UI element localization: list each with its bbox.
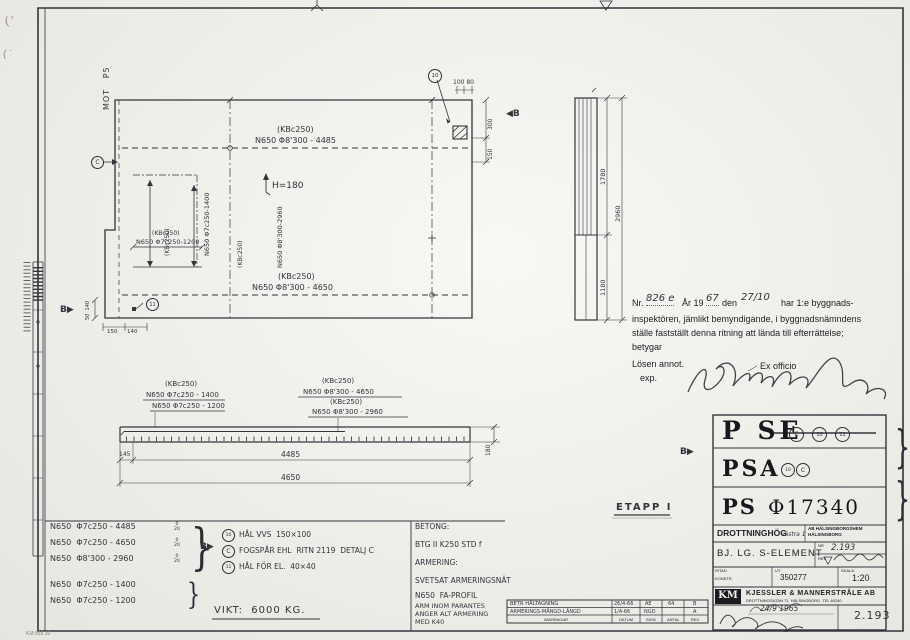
pse-mark-11-label: 11 bbox=[839, 432, 845, 438]
plan-vert1-kbc: (KBc250) bbox=[165, 193, 171, 256]
plan-mot-p5-label: MOT P5 bbox=[103, 66, 111, 110]
plan-bottom-rebar-note-line2: N650 Φ8'300 - 4650 bbox=[252, 284, 333, 292]
plan-dim-150: 150 bbox=[488, 149, 494, 160]
title-block-marker-b: B▶ bbox=[680, 448, 694, 457]
plan-dim-140-bottom: 140 bbox=[127, 330, 138, 336]
sheet-number: 2.193 bbox=[854, 610, 891, 622]
rebar-row-2-tolerance: 0 20 bbox=[174, 538, 180, 549]
tol-bottom: 20 bbox=[174, 543, 180, 548]
km-logo: KM bbox=[715, 589, 741, 604]
pse-mark-10-label: 10 bbox=[816, 432, 822, 438]
section-dim-1180: 1180 bbox=[600, 279, 607, 296]
plan-top-rebar-note-line1: (KBc250) bbox=[277, 126, 314, 134]
plan-callout-c: C bbox=[91, 156, 104, 169]
note-callout-10-number: 10 bbox=[226, 533, 232, 538]
pse-mark-10: 10 bbox=[812, 427, 827, 442]
note-callout-11-number: 11 bbox=[226, 565, 232, 570]
plan-callout-10-number: 10 bbox=[432, 73, 439, 79]
stamp-year-label: År 19 bbox=[682, 299, 704, 308]
stamp-nr-value: 826 e bbox=[646, 294, 674, 306]
note-callout-c-letter: C bbox=[226, 548, 230, 555]
rebar-group-brace-2: } bbox=[187, 577, 200, 612]
note-callout-11: 11 bbox=[222, 561, 235, 574]
revision-header-text: ÄNDRINGAR bbox=[544, 618, 568, 622]
plan-dim-300: 300 bbox=[488, 119, 494, 130]
corner-print-note: KM 858.39 bbox=[26, 632, 50, 637]
elevation-left-note-kbc: (KBc250) bbox=[165, 381, 197, 388]
plan-vert2-spec: N650 Φ8'300-2960 bbox=[277, 206, 284, 268]
scanned-construction-drawing: ( ′ ( ˙ KM 858.39 } } MOT P5 (KBc250) N6… bbox=[0, 0, 910, 640]
revision-row-2-rev: A bbox=[693, 610, 696, 615]
rebar-row-2: N650 Φ7c250 - 4650 bbox=[50, 539, 136, 547]
plan-height-label: H=180 bbox=[272, 182, 304, 191]
stamp-line4: betygar bbox=[632, 343, 662, 352]
element-title: BJ. LG. S-ELEMENT bbox=[717, 549, 823, 559]
psa-mark-c-label: C bbox=[801, 467, 805, 474]
element-code-psa: PSA bbox=[722, 458, 781, 481]
elevation-left-note-spec1: N650 Φ7c250 - 1400 bbox=[146, 392, 219, 399]
note-hal-el: HÅL FÖR EL. 40×40 bbox=[239, 563, 316, 571]
rebar-row-1-tolerance: 0 20 bbox=[174, 522, 180, 533]
fold-marks bbox=[311, 0, 612, 11]
plan-vertical-rebar-label-2: (KBc250) N650 Φ8'300-2960 bbox=[204, 206, 318, 268]
rebar-row-4: N650 Φ7c250 - 1400 bbox=[50, 581, 136, 589]
plan-section-marker-b-right: ◀B bbox=[506, 110, 520, 119]
materials-profil: N650 FA-PROFIL bbox=[415, 592, 477, 600]
materials-paren-line1: ARM INOM PARANTES bbox=[415, 603, 485, 610]
plan-callout-c-letter: C bbox=[95, 159, 99, 166]
revision-row-2-sign: NGD bbox=[644, 610, 655, 615]
elevation-lines bbox=[117, 397, 500, 487]
psa-mark-c: C bbox=[796, 463, 810, 477]
elevation-left-note-spec2: N650 Φ7c250 - 1200 bbox=[152, 403, 225, 410]
materials-armering-label: ARMERING: bbox=[415, 559, 458, 567]
company-address: DROTTNINGGATAN 71 HÄLSINGBORG TEL 60240 bbox=[746, 599, 842, 603]
date-handwritten: 24/9 1965 bbox=[760, 605, 798, 613]
scan-mark-top-left-2: ( ˙ bbox=[3, 50, 13, 61]
elevation-dim-180: 180 bbox=[486, 445, 492, 456]
revision-row-1-rev: B bbox=[693, 602, 696, 607]
revision-header-date: DATUM bbox=[619, 618, 633, 622]
note-hal-vvs: HÅL VVS 150×100 bbox=[239, 531, 311, 539]
rev-label: REV. bbox=[818, 557, 827, 561]
stamp-exp: exp. bbox=[640, 374, 657, 383]
note-callout-10: 10 bbox=[222, 529, 235, 542]
materials-paren-line2: ANGER ALT ARMERING bbox=[415, 611, 488, 618]
plan-inner-horizontal-note-line2: N650 Φ7c250-1200 bbox=[136, 239, 199, 246]
scan-mark-top-left-1: ( ′ bbox=[4, 15, 14, 28]
stamp-line1-rest: har 1:e byggnads- bbox=[781, 299, 854, 308]
plan-callout-10: 10 bbox=[428, 69, 442, 83]
note-callout-c: C bbox=[222, 545, 235, 558]
skala-value: 1:20 bbox=[852, 574, 870, 583]
rebar-marker-b: B▶ bbox=[200, 543, 214, 552]
revision-row-1-sign: ÄE bbox=[645, 602, 652, 607]
plan-bottom-rebar-note-line1: (KBc250) bbox=[278, 273, 315, 281]
elevation-dim-145: 145 bbox=[119, 452, 130, 458]
weight-label: VIKT: 6000 KG. bbox=[214, 606, 305, 617]
km-logo-text: KM bbox=[718, 591, 738, 602]
materials-armering-value: SVETSAT ARMERINGSNÄT bbox=[415, 577, 511, 585]
stamp-year-value: 67 bbox=[706, 294, 719, 306]
plan-callout-11: 11 bbox=[146, 298, 159, 311]
stamp-day-value: 27/10 bbox=[741, 293, 770, 304]
stamp-ex-officio: Ex officio bbox=[760, 362, 796, 371]
revision-header-antal: ANTAL bbox=[667, 618, 680, 622]
tol-bottom: 20 bbox=[174, 559, 180, 564]
rebar-row-1: N650 Φ7c250 - 4485 bbox=[50, 523, 136, 531]
plan-inner-horizontal-note-line1: (KBc250) bbox=[152, 231, 179, 237]
right-margin-brace-2: } bbox=[895, 473, 910, 526]
section-dim-2960: 2960 bbox=[615, 205, 622, 222]
stamp-nr-label: Nr. bbox=[632, 299, 644, 308]
pse-mark-c-label: C bbox=[794, 431, 798, 438]
elevation-dim-4485: 4485 bbox=[281, 451, 300, 459]
section-dim-1780: 1780 bbox=[600, 168, 607, 185]
revision-row-1-date: 26/4-66 bbox=[614, 602, 633, 607]
company-name: KJESSLER & MANNERSTRÅLE AB bbox=[746, 590, 875, 597]
project-name: DROTTNINGHÖG bbox=[717, 529, 787, 538]
etapp-label: ETAPP I bbox=[616, 503, 672, 514]
plan-dim-150-bottom: 150 bbox=[107, 330, 118, 336]
nr-value: 2.193 bbox=[831, 544, 855, 553]
revision-header-rev: REV. bbox=[691, 618, 700, 622]
plan-section-marker-b-left: B▶ bbox=[60, 306, 74, 315]
client-line2: HÄLSINGBORG bbox=[808, 533, 842, 538]
revision-row-2-date: 1/4-66 bbox=[614, 610, 630, 615]
plan-callout-11-number: 11 bbox=[149, 302, 155, 308]
konstr-label: KONSTR. bbox=[715, 577, 733, 581]
elevation-dim-4650: 4650 bbox=[281, 474, 300, 482]
stamp-day-label: den bbox=[722, 299, 737, 308]
psa-mark-10: 10 bbox=[781, 463, 795, 477]
rebar-row-5: N650 Φ7c250 - 1200 bbox=[50, 597, 136, 605]
stamp-line3: ställe fastställt denna ritning att länd… bbox=[632, 329, 844, 338]
ritad-label: RITAD bbox=[715, 569, 727, 573]
right-margin-brace-1: } bbox=[895, 421, 910, 474]
elevation-right-note-spec1: N650 Φ8'300 - 4650 bbox=[303, 389, 374, 396]
plan-vert2-kbc: (KBc250) bbox=[238, 206, 244, 268]
materials-betong-value: BTG II K250 STD f bbox=[415, 541, 482, 549]
plan-dim-50-140: 50 140 bbox=[86, 301, 91, 320]
left-strip-detail bbox=[27, 262, 43, 556]
pse-mark-11: 11 bbox=[835, 427, 850, 442]
element-code-ps: PS bbox=[722, 496, 757, 518]
materials-paren-line3: MED K40 bbox=[415, 619, 444, 626]
elevation-right-note-kbc1: (KBc250) bbox=[322, 378, 354, 385]
psa-mark-10-label: 10 bbox=[785, 468, 791, 473]
client-line1: AB HÄLSINGBORGSHEM bbox=[808, 527, 863, 532]
pse-mark-c: C bbox=[789, 427, 804, 442]
project-part: västra 1 bbox=[781, 532, 806, 538]
revision-row-1-antal: 64 bbox=[668, 602, 674, 607]
stamp-losen: Lösen annot. bbox=[632, 360, 684, 369]
nr-label: NR bbox=[818, 544, 824, 548]
elevation-right-note-spec2: N650 Φ8'300 - 2960 bbox=[312, 409, 383, 416]
elevation-right-note-kbc2: (KBc250) bbox=[330, 399, 362, 406]
plan-top-rebar-note-line2: N650 Φ8'300 - 4485 bbox=[255, 137, 336, 145]
rebar-row-3: N650 Φ8'300 - 2960 bbox=[50, 555, 134, 563]
revision-row-2-text: ARMERINGS-MÄNGD-LÄNGD bbox=[510, 610, 581, 615]
tol-bottom: 20 bbox=[174, 527, 180, 532]
note-fogspar: FOGSPÅR EHL RITN 2119 DETALJ C bbox=[239, 547, 374, 555]
plan-hole-dim-top: 100 80 bbox=[453, 80, 474, 86]
revision-header-sign: SIGN bbox=[646, 618, 656, 622]
materials-betong-label: BETONG: bbox=[415, 523, 449, 531]
rebar-row-3-tolerance: 0 20 bbox=[174, 554, 180, 565]
element-code-ps-number: Φ17340 bbox=[768, 497, 860, 518]
stamp-line2: inspektören, jämlikt bemyndigande, i byg… bbox=[632, 315, 861, 324]
etapp-underline bbox=[612, 515, 672, 518]
ut-value: 350277 bbox=[780, 574, 807, 582]
revision-row-1-text: BETR HÅLTAGNING bbox=[510, 602, 558, 607]
